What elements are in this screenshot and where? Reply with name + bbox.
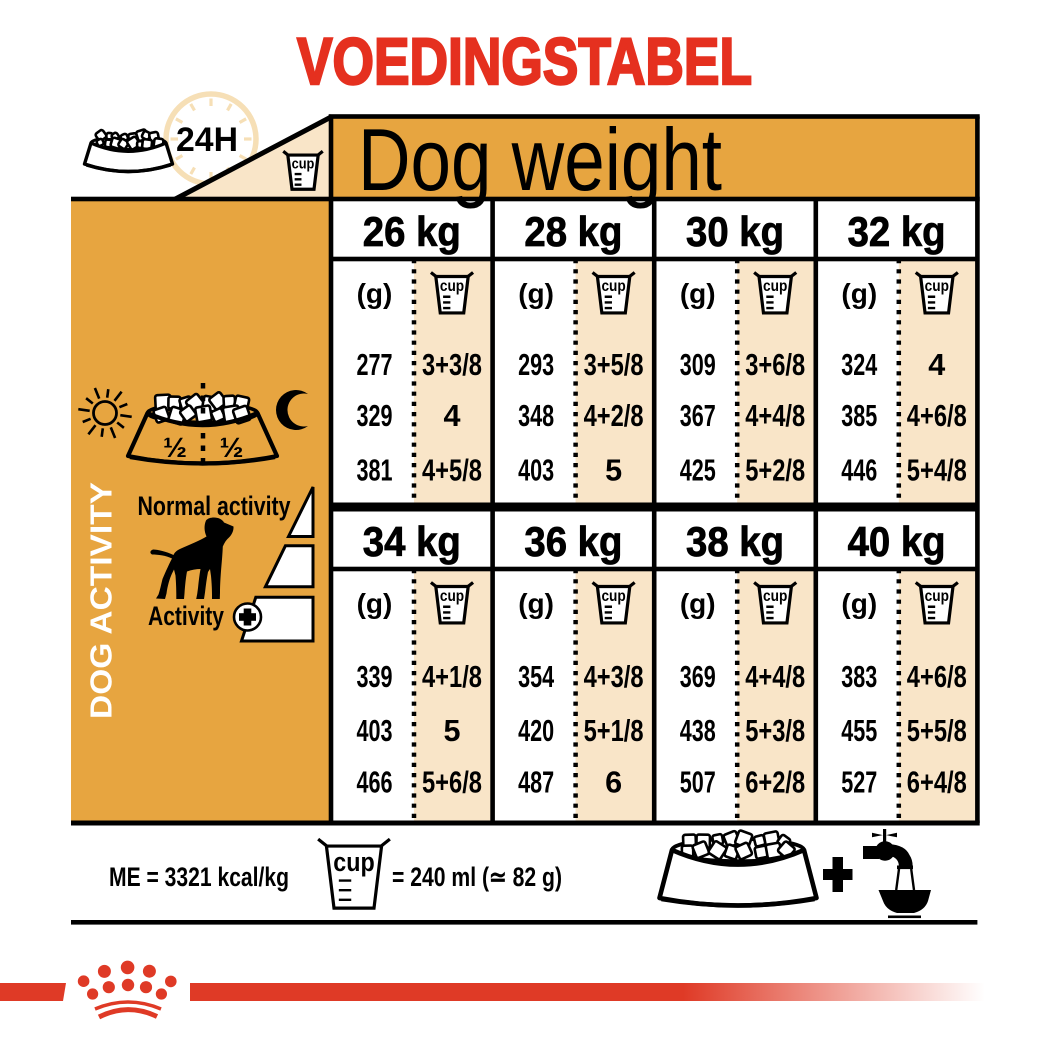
svg-text:5+4/8: 5+4/8: [907, 454, 967, 488]
svg-text:4+1/8: 4+1/8: [422, 660, 482, 694]
svg-text:(g): (g): [518, 588, 554, 619]
svg-text:(g): (g): [841, 278, 877, 309]
svg-text:4+3/8: 4+3/8: [584, 660, 644, 694]
svg-text:5+1/8: 5+1/8: [584, 714, 644, 748]
svg-text:5+5/8: 5+5/8: [907, 714, 967, 748]
svg-text:6+2/8: 6+2/8: [745, 766, 805, 800]
svg-text:32 kg: 32 kg: [848, 208, 946, 255]
svg-text:383: 383: [841, 660, 877, 694]
svg-text:cup: cup: [763, 278, 787, 295]
svg-text:Normal activity: Normal activity: [138, 491, 291, 521]
svg-text:40 kg: 40 kg: [848, 518, 946, 565]
svg-text:= 240 ml (≃ 82 g): = 240 ml (≃ 82 g): [392, 862, 562, 892]
svg-text:28 kg: 28 kg: [524, 208, 622, 255]
svg-text:(g): (g): [357, 588, 393, 619]
svg-text:30 kg: 30 kg: [686, 208, 784, 255]
svg-text:324: 324: [841, 348, 877, 382]
svg-text:527: 527: [841, 766, 877, 800]
svg-text:5+2/8: 5+2/8: [745, 454, 805, 488]
svg-text:(g): (g): [680, 278, 716, 309]
svg-text:½: ½: [163, 432, 187, 463]
svg-text:339: 339: [357, 660, 393, 694]
svg-text:cup: cup: [292, 157, 315, 173]
svg-text:354: 354: [518, 660, 554, 694]
svg-text:38 kg: 38 kg: [686, 518, 784, 565]
svg-text:(g): (g): [841, 588, 877, 619]
svg-text:403: 403: [357, 714, 393, 748]
svg-text:369: 369: [680, 660, 716, 694]
svg-text:ME = 3321 kcal/kg: ME = 3321 kcal/kg: [109, 862, 289, 892]
svg-text:277: 277: [357, 348, 393, 382]
svg-text:425: 425: [680, 454, 716, 488]
svg-text:cup: cup: [925, 278, 949, 295]
svg-text:cup: cup: [333, 847, 374, 877]
svg-text:487: 487: [518, 766, 554, 800]
svg-text:26 kg: 26 kg: [363, 208, 461, 255]
svg-text:VOEDINGSTABEL: VOEDINGSTABEL: [297, 24, 752, 98]
svg-text:309: 309: [680, 348, 716, 382]
svg-text:367: 367: [680, 399, 716, 433]
svg-text:4+4/8: 4+4/8: [745, 660, 805, 694]
svg-text:6+4/8: 6+4/8: [907, 766, 967, 800]
svg-text:5+6/8: 5+6/8: [422, 766, 482, 800]
svg-text:DOG ACTIVITY: DOG ACTIVITY: [84, 482, 119, 719]
svg-text:446: 446: [841, 454, 877, 488]
svg-text:½: ½: [220, 432, 244, 463]
svg-text:(g): (g): [518, 278, 554, 309]
svg-text:36 kg: 36 kg: [524, 518, 622, 565]
svg-text:cup: cup: [601, 588, 625, 605]
svg-text:Activity: Activity: [148, 601, 224, 631]
svg-text:438: 438: [680, 714, 716, 748]
svg-text:Dog weight: Dog weight: [358, 110, 722, 209]
svg-text:5: 5: [605, 454, 622, 488]
svg-text:cup: cup: [925, 588, 949, 605]
svg-text:381: 381: [357, 454, 393, 488]
svg-text:466: 466: [357, 766, 393, 800]
svg-text:4+5/8: 4+5/8: [422, 454, 482, 488]
svg-text:293: 293: [518, 348, 554, 382]
svg-text:3+3/8: 3+3/8: [422, 348, 482, 382]
svg-text:34 kg: 34 kg: [363, 518, 461, 565]
svg-text:4+6/8: 4+6/8: [907, 660, 967, 694]
svg-text:cup: cup: [440, 588, 464, 605]
svg-text:348: 348: [518, 399, 554, 433]
svg-text:385: 385: [841, 399, 877, 433]
svg-text:455: 455: [841, 714, 877, 748]
svg-text:6: 6: [605, 766, 622, 800]
svg-text:420: 420: [518, 714, 554, 748]
svg-text:403: 403: [518, 454, 554, 488]
svg-text:507: 507: [680, 766, 716, 800]
svg-text:4+2/8: 4+2/8: [584, 399, 644, 433]
svg-text:5+3/8: 5+3/8: [745, 714, 805, 748]
svg-text:3+6/8: 3+6/8: [745, 348, 805, 382]
svg-text:4: 4: [444, 399, 461, 433]
svg-text:(g): (g): [680, 588, 716, 619]
svg-text:5: 5: [444, 714, 461, 748]
svg-text:cup: cup: [440, 278, 464, 295]
svg-text:4+6/8: 4+6/8: [907, 399, 967, 433]
svg-text:cup: cup: [763, 588, 787, 605]
svg-text:4+4/8: 4+4/8: [745, 399, 805, 433]
svg-text:329: 329: [357, 399, 393, 433]
svg-text:(g): (g): [357, 278, 393, 309]
svg-text:cup: cup: [601, 278, 625, 295]
svg-text:3+5/8: 3+5/8: [584, 348, 644, 382]
svg-text:24H: 24H: [176, 121, 238, 159]
svg-text:4: 4: [928, 348, 945, 382]
